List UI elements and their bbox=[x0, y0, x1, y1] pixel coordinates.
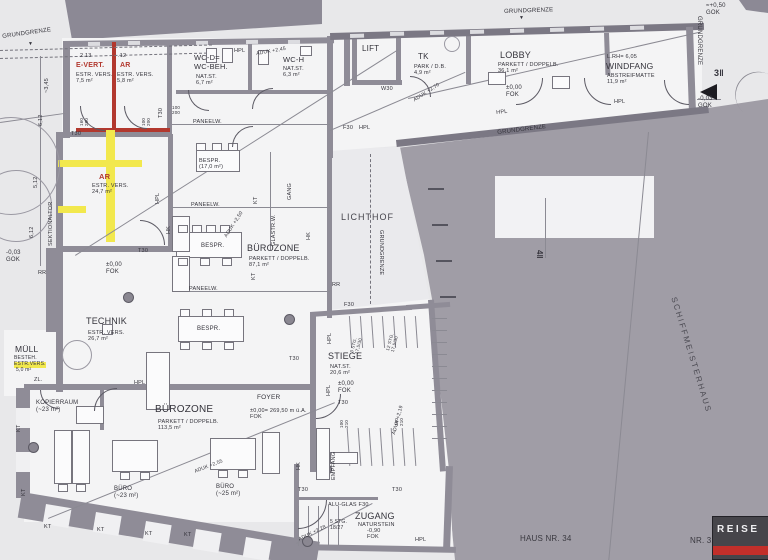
room-ar2-details: ESTR. VERS. 24,7 m² bbox=[92, 183, 128, 196]
window bbox=[590, 27, 604, 31]
dim-213: 2.13 bbox=[80, 53, 92, 59]
annot-hk-3: HK bbox=[166, 226, 172, 234]
annot-paneelw-3: PANEELW. bbox=[189, 286, 218, 292]
court-lichthof-title: LICHTHOF bbox=[341, 212, 394, 223]
annot-kt-1: KT bbox=[253, 197, 259, 204]
annot-hpl-1: HPL bbox=[234, 48, 245, 54]
furniture bbox=[112, 440, 158, 472]
window bbox=[550, 28, 564, 32]
room-buero1-title: BÜRO (~23 m²) bbox=[114, 486, 138, 500]
window bbox=[243, 537, 272, 560]
chair bbox=[196, 143, 206, 151]
room-lobby-title: LOBBY bbox=[500, 50, 531, 61]
highlight bbox=[58, 160, 142, 167]
notch-line bbox=[545, 198, 546, 258]
reise-logo: REISE bbox=[712, 516, 768, 560]
room-tk-title: TK bbox=[418, 52, 429, 61]
chair bbox=[192, 225, 202, 233]
dim-door-100200a: 100 200 bbox=[141, 118, 152, 126]
door-t30-5: T30 bbox=[338, 400, 348, 406]
room-zugang-title: ZUGANG bbox=[355, 511, 395, 522]
door-t30-4: T30 bbox=[289, 356, 299, 362]
window bbox=[288, 40, 300, 44]
annot-kt-3: KT bbox=[16, 425, 22, 432]
annot-w30: W30 bbox=[381, 86, 393, 92]
table-bespr-2: BESPR. bbox=[197, 326, 220, 333]
chair bbox=[120, 472, 130, 480]
annot-alu-glas: ALU-GLAS F30 bbox=[328, 502, 369, 508]
room-lobby-details: PARKETT / DOPPELB. 36,1 m² bbox=[498, 62, 559, 75]
wall bbox=[56, 246, 172, 252]
furniture bbox=[146, 352, 170, 410]
wall bbox=[16, 388, 30, 498]
window bbox=[88, 41, 100, 45]
annot-hpl-3: HPL bbox=[496, 109, 508, 117]
dim-512: 5,12 bbox=[33, 176, 39, 188]
column-dot bbox=[123, 292, 134, 303]
stair-tread bbox=[432, 318, 447, 319]
furniture bbox=[262, 432, 280, 474]
room-kopierraum-title: KOPIERRAUM (~23 m²) bbox=[36, 400, 78, 414]
window bbox=[510, 29, 524, 33]
door-t30-3: T30 bbox=[138, 248, 148, 254]
level-lobby: ±0,00 FOK bbox=[506, 85, 522, 99]
grundgrenze-top: GRUNDGRENZE bbox=[504, 7, 553, 16]
room-wcd-details: NAT.ST. 6,7 m² bbox=[196, 74, 217, 87]
room-buero2-title: BÜRO (~25 m²) bbox=[216, 484, 240, 498]
room-evert-title: E-VERT. bbox=[76, 62, 104, 70]
dim-612b: 6,12 bbox=[29, 226, 35, 238]
annot-paneelw-1: PANEELW. bbox=[193, 119, 222, 125]
wall bbox=[466, 30, 471, 84]
wall bbox=[344, 34, 350, 86]
chair bbox=[224, 309, 234, 317]
room-foyer-title: FOYER bbox=[257, 394, 280, 402]
room-muell-title: MÜLL bbox=[15, 344, 38, 354]
annot-hpl-5: HPL bbox=[134, 380, 145, 386]
stair-tread bbox=[432, 366, 447, 367]
stairs-zugang: 5 STG. 18/27 bbox=[330, 520, 347, 532]
wall bbox=[327, 150, 332, 318]
room-buerozone1-details: PARKETT / DOPPELB. 87,1 m² bbox=[249, 256, 310, 269]
chair bbox=[202, 309, 212, 317]
annot-kt-5: KT bbox=[44, 524, 51, 530]
section-marker-4: 4‖ bbox=[535, 250, 544, 259]
annot-glastrw: GLASTR.W. bbox=[271, 214, 277, 246]
annot-zl: ZL. bbox=[34, 377, 43, 383]
stair-tread bbox=[432, 390, 447, 391]
grundgrenze-right: GRUNDGRENZE bbox=[695, 16, 702, 65]
window bbox=[16, 452, 30, 472]
chair bbox=[178, 225, 188, 233]
wall bbox=[352, 80, 402, 85]
room-muell-area: 5,0 m² bbox=[16, 368, 31, 374]
level-minus003-gok-right: -0,03 GOK bbox=[698, 96, 713, 110]
annot-rr-1: RR bbox=[38, 270, 46, 276]
dim-door-100210b: 100 210 bbox=[394, 418, 405, 426]
window bbox=[246, 40, 258, 44]
chair bbox=[140, 472, 150, 480]
stair-tread bbox=[432, 426, 447, 427]
level-zugang: -0,90 FOK bbox=[367, 528, 381, 541]
dim-12: .12 bbox=[118, 53, 126, 59]
room-windfang-title: WINDFANG bbox=[606, 61, 653, 71]
annot-hpl-8: HPL bbox=[415, 537, 426, 543]
stair-tread bbox=[432, 330, 447, 331]
annot-paneelw-2: PANEELW. bbox=[191, 202, 220, 208]
reise-logo-text: REISE bbox=[717, 524, 760, 535]
annot-f30-1: F30 bbox=[343, 125, 353, 131]
windfang-lrh: L.RH= 6,05 bbox=[607, 54, 637, 60]
room-bespr-title: BESPR. (17,0 m²) bbox=[199, 158, 223, 171]
annot-kt-8: KT bbox=[184, 532, 191, 538]
chair bbox=[222, 258, 232, 266]
stair-tread bbox=[432, 438, 447, 439]
room-technik-title: TECHNIK bbox=[86, 316, 127, 327]
section-marker-3: 3‖ bbox=[714, 68, 724, 79]
annot-hk-1: HK bbox=[306, 232, 312, 240]
room-ar1-details: ESTR. VERS. 5,8 m² bbox=[117, 72, 153, 85]
furniture bbox=[72, 430, 90, 484]
dim-door-160200: 160 200 bbox=[79, 118, 90, 126]
room-ar2-title: AR bbox=[99, 173, 110, 182]
wall bbox=[396, 34, 401, 84]
table-bespr-1: BESPR. bbox=[201, 243, 224, 250]
stair-tread bbox=[328, 506, 329, 546]
level-foyer: ±0,00= 269,50 m ü.A. FOK bbox=[250, 408, 307, 421]
chair bbox=[200, 258, 210, 266]
room-ar1-title: AR bbox=[120, 62, 131, 70]
highlight bbox=[58, 206, 86, 213]
room-lift-title: LIFT bbox=[362, 44, 379, 53]
dim-345: ~3,45 bbox=[44, 78, 50, 93]
furniture bbox=[172, 216, 190, 252]
window bbox=[630, 26, 644, 30]
level-technik: ±0,00 FOK bbox=[106, 262, 122, 276]
level-plus050-gok: ≈+0,50 GOK bbox=[706, 3, 726, 17]
grundgrenze-lichthof: GRUNDGRENZE bbox=[378, 230, 384, 275]
annot-hpl-2: HPL bbox=[359, 125, 370, 131]
reise-logo-stripe bbox=[713, 546, 768, 555]
circle-mark bbox=[62, 340, 92, 370]
room-buerozone2-title: BÜROZONE bbox=[155, 404, 213, 416]
annot-sektionaltor: SEKTIONALTOR bbox=[48, 202, 54, 246]
tick bbox=[432, 224, 448, 226]
door-t30-2: T30 bbox=[158, 108, 164, 118]
window bbox=[128, 41, 140, 45]
room-wcd-title: WC-D= WC-BEH. bbox=[194, 54, 228, 72]
room-wch-details: NAT.ST. 6,3 m² bbox=[283, 66, 304, 79]
window bbox=[193, 529, 222, 553]
wall-red bbox=[76, 128, 170, 132]
chair bbox=[218, 470, 228, 478]
annot-kt-4: KT bbox=[21, 489, 27, 496]
room-technik-details: ESTR. VERS. 26,7 m² bbox=[88, 330, 124, 343]
grundgrenze-top-left: GRUNDGRENZE bbox=[2, 27, 52, 41]
annot-hpl-4: HPL bbox=[614, 99, 625, 105]
wall bbox=[167, 44, 172, 136]
room-windfang-details: ABSTREIFMATTE 11,9 m² bbox=[607, 73, 655, 86]
grundgrenze-dash-line bbox=[370, 154, 371, 304]
chair bbox=[206, 225, 216, 233]
annot-hpl-7: HPL bbox=[326, 385, 332, 396]
dim-door-100200b: 100 200 bbox=[172, 105, 180, 116]
chair bbox=[212, 143, 222, 151]
circle-mark bbox=[444, 36, 460, 52]
furniture bbox=[552, 76, 570, 89]
wall bbox=[327, 36, 333, 158]
level-minus003-gok-left: -0,03 GOK bbox=[6, 250, 21, 264]
window bbox=[430, 31, 444, 35]
door-t30-7: T30 bbox=[392, 487, 402, 493]
boundary-arrow-left: ▼ bbox=[28, 42, 33, 48]
chair bbox=[202, 342, 212, 350]
floor-plan-canvas: GRUNDGRENZE▼GRUNDGRENZE▼GRUNDGRENZEGRUND… bbox=[0, 0, 768, 560]
annot-kt-2: KT bbox=[251, 273, 257, 280]
column-dot bbox=[284, 314, 295, 325]
annot-hpl-6: HPL bbox=[327, 333, 333, 344]
house-nr-34: HAUS NR. 34 bbox=[520, 534, 572, 543]
chair bbox=[178, 258, 188, 266]
window bbox=[350, 33, 364, 37]
annot-kt-6: KT bbox=[97, 527, 104, 533]
tick bbox=[440, 296, 456, 298]
boundary-arrow-top: ▼ bbox=[519, 16, 524, 22]
annot-hpl-9: HPL bbox=[155, 193, 161, 204]
annot-gang: GANG bbox=[287, 183, 293, 200]
stair-tread bbox=[432, 342, 447, 343]
tick bbox=[436, 260, 452, 262]
room-buerozone2-details: PARKETT / DOPPELB. 113,5 m² bbox=[158, 419, 219, 432]
stair-tread bbox=[432, 354, 447, 355]
chair bbox=[224, 342, 234, 350]
dim-door-100210a: 100 210 bbox=[339, 420, 350, 428]
chair bbox=[180, 309, 190, 317]
room-stiege-details: NAT.ST. 20,6 m² bbox=[330, 364, 351, 377]
annot-f30-2: F30 bbox=[344, 302, 354, 308]
tick bbox=[428, 188, 444, 190]
door-t30-6: T30 bbox=[298, 487, 308, 493]
furniture bbox=[316, 428, 330, 480]
room-wch-title: WC-H bbox=[283, 56, 304, 65]
wall bbox=[248, 40, 252, 92]
column-dot bbox=[28, 442, 39, 453]
furniture bbox=[54, 430, 72, 484]
room-tk-details: PARK / D.B. 4,9 m² bbox=[414, 64, 446, 77]
window bbox=[470, 30, 484, 34]
annot-hk-2: HK bbox=[296, 462, 302, 470]
chair bbox=[238, 470, 248, 478]
dim-612a: 6,12 bbox=[38, 114, 44, 126]
chair bbox=[180, 342, 190, 350]
level-stiege: ±0,00 FOK bbox=[338, 381, 354, 395]
stair-tread bbox=[432, 402, 447, 403]
annot-kt-7: KT bbox=[145, 531, 152, 537]
room-evert-details: ESTR. VERS. 7,5 m² bbox=[76, 72, 112, 85]
wall bbox=[56, 246, 63, 392]
annot-empfang: EMPFANG bbox=[331, 452, 337, 480]
chair bbox=[76, 484, 86, 492]
chair bbox=[58, 484, 68, 492]
door-t30-1: T30 bbox=[71, 131, 81, 137]
annot-rr-2: RR bbox=[332, 282, 340, 288]
stair-tread bbox=[432, 378, 447, 379]
stair-tread bbox=[432, 414, 447, 415]
